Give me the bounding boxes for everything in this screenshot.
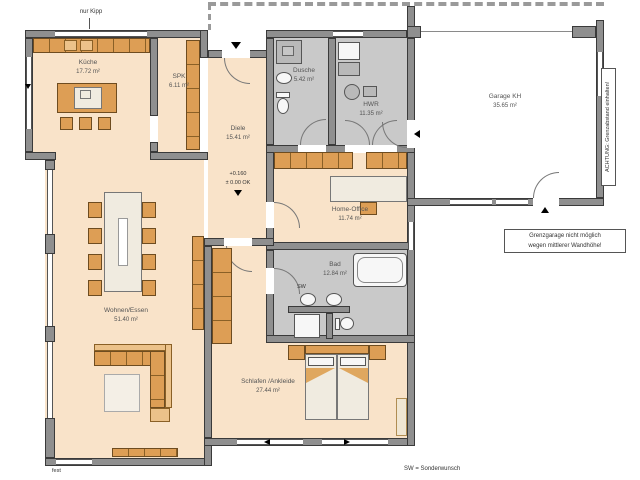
door-opening (533, 198, 559, 206)
room-area: 11.35 m² (346, 110, 396, 119)
door-opening (266, 202, 274, 228)
washbasin (300, 293, 316, 306)
room-name: Schlafen /Ankleide (232, 377, 304, 387)
level-marker-triangle (234, 190, 242, 196)
annotation-tick (89, 18, 90, 29)
room-area: 35.65 m² (475, 102, 535, 111)
room-bad-label: Bad 12.84 m² (312, 260, 358, 279)
stool (60, 117, 73, 130)
desk (330, 176, 407, 202)
pantry-shelves (186, 40, 200, 150)
rug (104, 374, 140, 412)
room-dusche-label: Dusche 5.42 m² (282, 66, 326, 85)
wall (200, 30, 208, 58)
window (47, 342, 53, 418)
chair (88, 254, 102, 270)
bath-partition-wall (326, 313, 333, 339)
door-opening (266, 268, 274, 294)
window-arrow (264, 439, 270, 445)
chair (142, 254, 156, 270)
kitchen-sink-unit (80, 40, 93, 51)
room-area: 11.74 m² (318, 215, 382, 224)
office-cabinets (366, 152, 407, 169)
door-opening (222, 50, 250, 58)
chair (142, 202, 156, 218)
wall (328, 38, 336, 145)
room-name: SPK (157, 72, 201, 82)
room-name: Küche (58, 58, 118, 68)
window (237, 439, 303, 445)
wall (266, 38, 274, 145)
window (322, 439, 388, 445)
wall (204, 246, 212, 438)
wall (266, 152, 274, 250)
wall (45, 418, 55, 458)
window-fest (56, 459, 92, 465)
sofa-back (94, 344, 172, 351)
nightstand (369, 345, 386, 360)
sideboard (112, 448, 178, 457)
nightstand (288, 345, 305, 360)
floor-plan: Küche 17.72 m² SPK 6.11 m² Diele 15.41 m… (0, 0, 640, 480)
wall (266, 250, 274, 343)
stool (79, 117, 92, 130)
wall (266, 242, 415, 250)
note-line2: wegen mittlerer Wandhöhe! (505, 242, 625, 252)
garage-door-post (407, 26, 421, 38)
window (26, 57, 32, 129)
chair (88, 228, 102, 244)
room-area: 6.11 m² (157, 82, 201, 91)
door-opening (150, 116, 158, 142)
room-diele-floor (208, 58, 266, 238)
room-area: 51.40 m² (94, 316, 158, 325)
grenzgarage-note: Grenzgarage nicht möglich wegen mittlere… (504, 229, 626, 253)
garage-door-line (421, 31, 572, 32)
room-schlafen-label: Schlafen /Ankleide 27.44 m² (232, 377, 304, 396)
wardrobe (212, 248, 232, 344)
table-runner (118, 218, 128, 266)
toilet-bowl (277, 98, 289, 114)
shower (294, 314, 320, 338)
pillow (340, 357, 366, 366)
chair (142, 228, 156, 244)
window (47, 170, 53, 234)
wall (266, 335, 415, 343)
dryer (338, 62, 360, 76)
sw-legend: SW = Sonderwunsch (404, 466, 460, 473)
duvet-fold (306, 368, 335, 383)
level-marker: +0.160 ± 0.00 OK (214, 170, 262, 188)
window-arrow (344, 439, 350, 445)
window (333, 31, 363, 37)
wall (45, 160, 55, 170)
room-name: HWR (346, 100, 396, 110)
bench (396, 398, 407, 436)
window (496, 199, 528, 205)
pillow (308, 357, 334, 366)
room-name: Garage KH (475, 92, 535, 102)
window (47, 254, 53, 326)
kitchen-sink-unit (64, 40, 77, 51)
utility-cabinet (363, 86, 377, 97)
room-kueche-label: Küche 17.72 m² (58, 58, 118, 77)
room-area: 27.44 m² (232, 387, 304, 396)
washbasin (326, 293, 342, 306)
sofa-ottoman (150, 408, 170, 422)
room-name: Dusche (282, 66, 326, 76)
chair (142, 280, 156, 296)
bathtub-inner (357, 257, 403, 283)
shower-tray (282, 46, 294, 56)
washer (338, 42, 360, 60)
room-name: Home-Office (318, 205, 382, 215)
wall (25, 152, 56, 160)
achtung-note: ACHTUNG: Grenzabstand einhalten! (601, 68, 616, 186)
wall (150, 142, 158, 152)
window (55, 31, 147, 37)
room-area: 5.42 m² (282, 76, 326, 85)
window (450, 199, 492, 205)
duvet-fold (339, 368, 368, 383)
sofa-seats (150, 351, 165, 408)
note-line1: Grenzgarage nicht möglich (505, 232, 625, 242)
level-ok: ± 0.00 OK (214, 179, 262, 188)
level-value: +0.160 (214, 170, 262, 179)
room-hwr-label: HWR 11.35 m² (346, 100, 396, 119)
room-spk-label: SPK 6.11 m² (157, 72, 201, 91)
door-arrow (414, 130, 420, 138)
wall (45, 326, 55, 342)
room-name: Bad (312, 260, 358, 270)
room-area: 15.41 m² (214, 134, 262, 143)
room-name: Diele (214, 124, 262, 134)
stool (98, 117, 111, 130)
bookshelf (192, 236, 204, 330)
toilet-bowl (340, 317, 354, 330)
roof-overhang-line (208, 4, 211, 30)
fest-annotation: fest (52, 468, 61, 475)
chair (88, 202, 102, 218)
utility-sink (344, 84, 360, 100)
room-homeoffice-label: Home-Office 11.74 m² (318, 205, 382, 224)
garage-door-marker (541, 207, 549, 213)
wall (150, 152, 208, 160)
window-arrow (25, 84, 31, 89)
room-wohnen-label: Wohnen/Essen 51.40 m² (94, 306, 158, 325)
room-area: 12.84 m² (312, 270, 358, 279)
cooktop (80, 90, 91, 99)
office-cabinets (274, 152, 353, 169)
window (408, 222, 414, 250)
chair (88, 280, 102, 296)
nur-kipp-annotation: nur Kipp (66, 9, 116, 16)
sw-label: SW (297, 284, 306, 291)
room-area: 17.72 m² (58, 68, 118, 77)
room-name: Wohnen/Essen (94, 306, 158, 316)
entrance-marker (231, 42, 241, 49)
door-opening (224, 238, 252, 246)
bed-headboard (305, 345, 369, 354)
wall (45, 234, 55, 254)
garage-door-post (572, 26, 596, 38)
room-garage-label: Garage KH 35.65 m² (475, 92, 535, 111)
sofa-back (165, 344, 172, 408)
room-diele-label: Diele 15.41 m² (214, 124, 262, 143)
bath-partition-wall (288, 306, 350, 313)
